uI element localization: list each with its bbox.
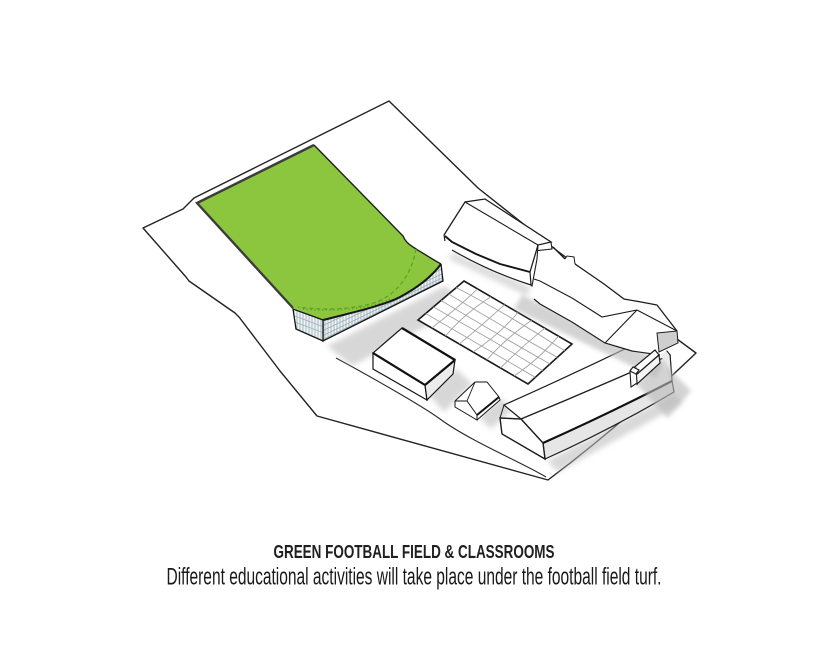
svg-text:GREEN FOOTBALL FIELD & CLASSRO: GREEN FOOTBALL FIELD & CLASSROOMS [274, 542, 555, 562]
svg-text:Different educational activiti: Different educational activities will ta… [167, 564, 662, 591]
